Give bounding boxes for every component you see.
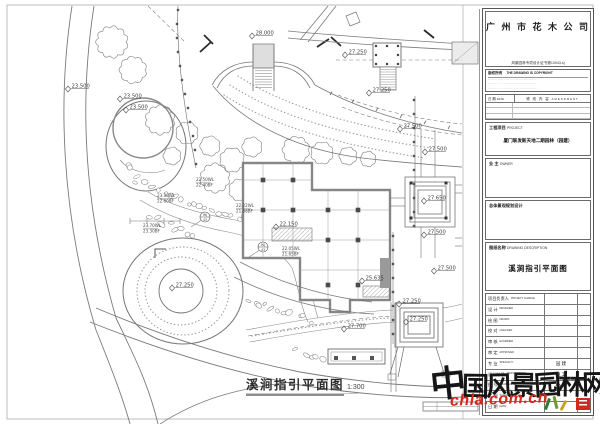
svg-text:43: 43 bbox=[203, 218, 207, 222]
water-level-label: 22.05WL21.65BF bbox=[282, 246, 301, 256]
south-walkway bbox=[90, 308, 462, 424]
svg-text:43: 43 bbox=[261, 248, 265, 252]
drawing-sheet: 28.00027.25027.25023.50023.50023.50027.5… bbox=[0, 0, 600, 424]
water-feature-square bbox=[388, 303, 450, 380]
spot-elevation: 27.250 bbox=[342, 49, 366, 58]
svg-text:22.22WL: 22.22WL bbox=[236, 203, 255, 208]
copyright-header: 版权所有 THE DRAWING IS COPYRIGHT bbox=[488, 71, 588, 78]
water-level-label: 22.22WL21.88BF bbox=[236, 203, 255, 213]
personnel-row: 项目负责人PROJECT CHARGE bbox=[486, 294, 590, 304]
svg-text:WJ: WJ bbox=[261, 243, 265, 247]
north-road-structures bbox=[288, 6, 478, 135]
left-road bbox=[64, 6, 158, 424]
spot-elevation: 27.500 bbox=[422, 146, 446, 155]
personnel-row: 图 号DRAWING NO.A0-43 bbox=[486, 380, 590, 391]
spot-elevation: 27.700 bbox=[341, 323, 365, 332]
plan-scale-text: 1:300 bbox=[347, 384, 365, 391]
personnel-row: 校 对CHECKED bbox=[486, 325, 590, 336]
main-building bbox=[243, 163, 390, 312]
svg-text:21.65BF: 21.65BF bbox=[282, 251, 300, 256]
plan-title-text: 溪涧指引平面图 bbox=[246, 378, 344, 396]
copyright-section: 版权所有 THE DRAWING IS COPYRIGHT ………… ……………… bbox=[485, 69, 591, 92]
personnel-row: 日 期DATE bbox=[486, 401, 590, 412]
spot-elevation: 28.000 bbox=[249, 30, 273, 39]
company-name: 广 州 市 花 木 公 司 bbox=[486, 20, 590, 33]
detail-callout: WJ43 bbox=[191, 212, 210, 227]
spot-elevation: 27.500 bbox=[421, 229, 445, 238]
svg-text:23.70WL: 23.70WL bbox=[143, 223, 162, 228]
personnel-row: 审 核EXAMINED bbox=[486, 336, 590, 347]
square-pavilion bbox=[390, 130, 462, 258]
revision-rows bbox=[486, 103, 590, 120]
revision-table: 日 期DATE 修 改 内 容 AMENDMENT bbox=[485, 94, 591, 120]
svg-text:23.30WL: 23.30WL bbox=[157, 193, 176, 198]
water-level-label: 23.30WL22.80BF bbox=[157, 193, 176, 203]
svg-text:WJ: WJ bbox=[203, 213, 207, 217]
project-section: 工程项目 PROJECT 厦门联发新天地二期园林（园建） bbox=[485, 122, 591, 156]
planning-section: 总体景观规划设计 bbox=[485, 200, 591, 240]
svg-text:22.50WL: 22.50WL bbox=[196, 177, 215, 182]
spot-elevation: 27.250 bbox=[366, 87, 390, 96]
spot-elevation: 27.250 bbox=[403, 316, 427, 325]
personnel-table: 项目负责人PROJECT CHARGE设 计DESIGNED绘 图DRAWN校 … bbox=[485, 293, 591, 413]
personnel-row: 设计阶段DESIGN STAGE施 工 bbox=[486, 369, 590, 380]
bench bbox=[423, 402, 478, 411]
copyright-lines: ………… ……………………………………………… …………………………………………… bbox=[488, 78, 588, 91]
promenade bbox=[213, 76, 462, 167]
revision-row bbox=[486, 119, 590, 120]
svg-text:22.40BF: 22.40BF bbox=[196, 182, 214, 187]
personnel-row: 审 定APPROVED bbox=[486, 347, 590, 358]
svg-text:22.80BF: 22.80BF bbox=[157, 198, 175, 203]
project-name: 厦门联发新天地二期园林（园建） bbox=[486, 138, 590, 144]
title-block: 广 州 市 花 木 公 司 风景园林专项设计证书第10043-sj AD.广州市… bbox=[482, 8, 594, 416]
svg-text:22.05WL: 22.05WL bbox=[282, 246, 301, 251]
company-section: 广 州 市 花 木 公 司 风景园林专项设计证书第10043-sj AD.广州市… bbox=[485, 11, 591, 67]
personnel-row: 比 例SCALE bbox=[486, 390, 590, 401]
spot-elevation: 27.500 bbox=[397, 123, 421, 132]
owner-section: 业 主 OWNER bbox=[485, 158, 591, 198]
revision-header: 日 期DATE 修 改 内 容 AMENDMENT bbox=[486, 95, 590, 103]
spot-elevation: 27.500 bbox=[431, 265, 455, 274]
personnel-row: 设 计DESIGNED bbox=[486, 304, 590, 315]
spot-elevation: 27.250 bbox=[169, 282, 193, 291]
personnel-row: 绘 图DRAWN bbox=[486, 315, 590, 326]
pond bbox=[106, 98, 186, 191]
drawing-description-section: 图纸名称 DRAWING DESCRIPTION 溪涧指引平面图 bbox=[485, 242, 591, 291]
water-level-label: 22.50WL22.40BF bbox=[196, 177, 215, 187]
plan-caption: 溪涧指引平面图1:300 bbox=[246, 374, 365, 394]
water-level-label: 23.70WL23.30BF bbox=[143, 223, 162, 233]
company-certificate: 风景园林专项设计证书第10043-sj bbox=[511, 61, 564, 67]
drawing-title: 溪涧指引平面图 bbox=[486, 263, 590, 274]
svg-text:21.88BF: 21.88BF bbox=[236, 208, 254, 213]
personnel-row: 专 业SPECIALTY园 建 bbox=[486, 358, 590, 369]
svg-text:23.30BF: 23.30BF bbox=[143, 228, 161, 233]
